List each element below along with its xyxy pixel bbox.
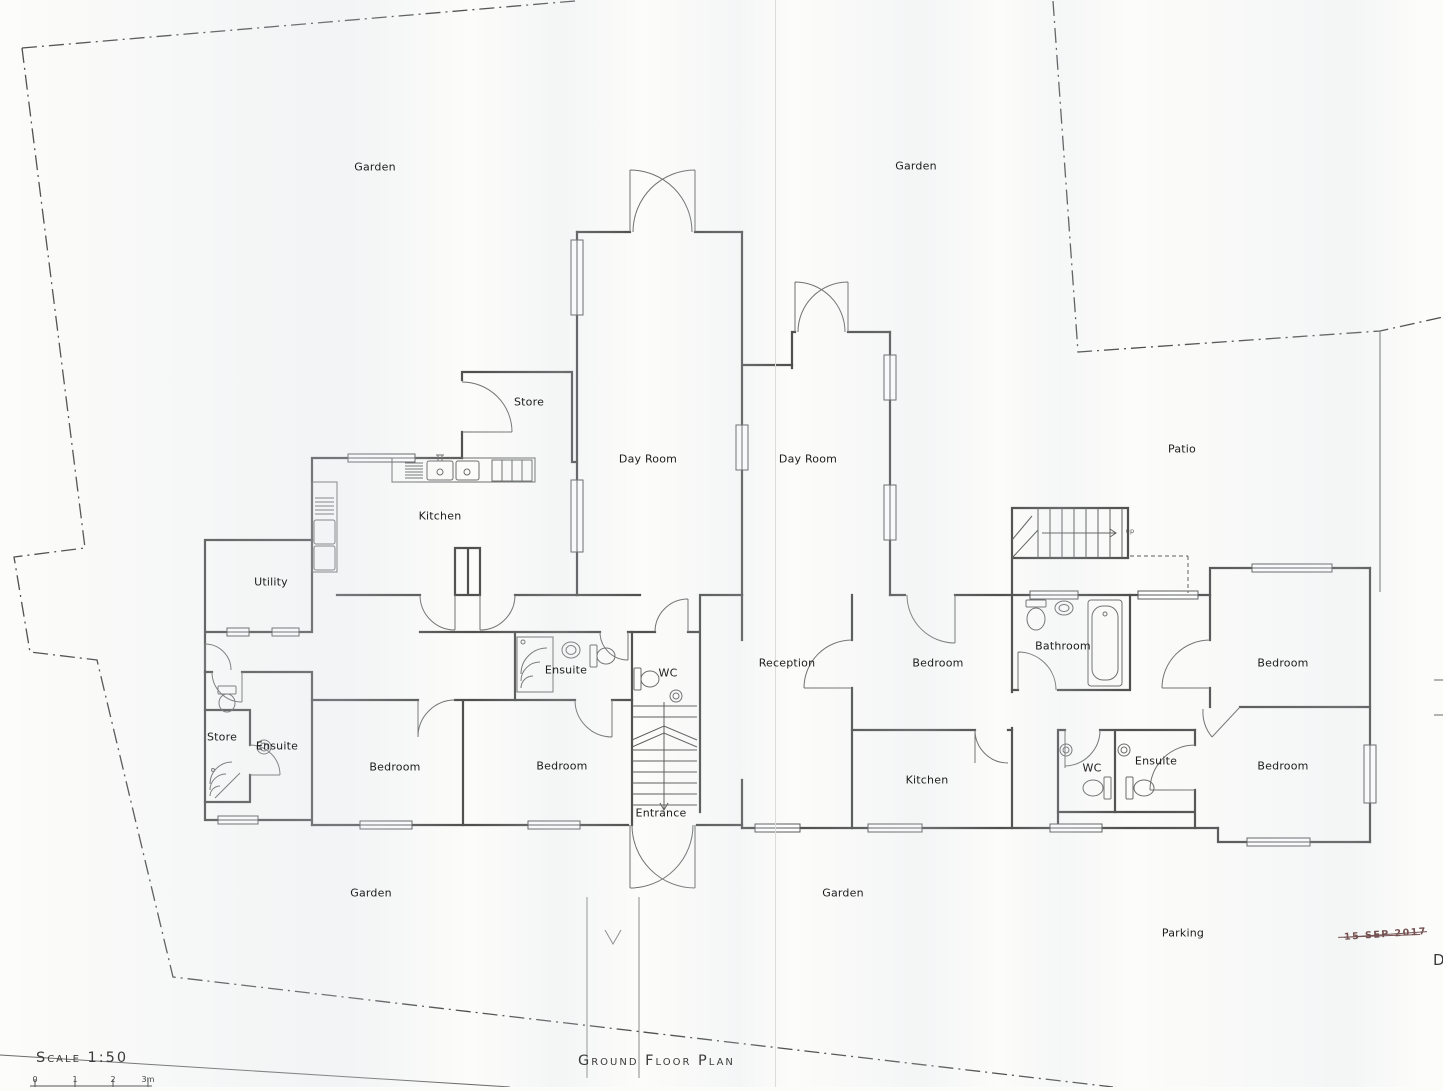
label-bedroom-right-top: Bedroom [912, 657, 963, 670]
label-stairs-up-note: up [1126, 527, 1135, 535]
label-day-room-left: Day Room [619, 453, 677, 466]
edge-cutoff-letter: D [1433, 951, 1443, 969]
scanned-floor-plan-page: { "titles": { "scale": "Scale 1:50", "pl… [0, 0, 1443, 1087]
windows [218, 240, 1376, 846]
scale-title: Scale 1:50 [36, 1050, 128, 1066]
label-bedroom-left-1: Bedroom [369, 761, 420, 774]
label-store-top: Store [514, 396, 544, 409]
label-entrance: Entrance [636, 807, 687, 820]
basin-icon [562, 642, 580, 658]
basin-icon [1060, 744, 1072, 756]
building-walls [205, 232, 1370, 842]
entrance-path [587, 897, 639, 1078]
label-garden-bottom-left: Garden [350, 887, 392, 900]
scale-tick-0: 0 [32, 1075, 37, 1084]
bathtub-icon [1088, 600, 1122, 686]
toilet-icon [218, 686, 236, 712]
scale-tick-1: 1 [72, 1075, 77, 1084]
plan-title: Ground Floor Plan [578, 1053, 735, 1069]
label-kitchen-right: Kitchen [906, 774, 949, 787]
toilet-icon [1026, 600, 1046, 630]
label-bedroom-left-2: Bedroom [536, 760, 587, 773]
basin-icon [1118, 744, 1130, 756]
label-garden-bottom-center: Garden [822, 887, 864, 900]
ensuite-right-fixtures [1118, 744, 1154, 799]
appliance-icon [314, 520, 335, 544]
scale-tick-3m: 3m [142, 1075, 155, 1084]
label-utility: Utility [254, 576, 288, 589]
entrance-double-doors [630, 825, 695, 888]
toilet-icon [1083, 777, 1111, 799]
label-store-block: Store [207, 731, 237, 744]
site-boundary [14, 1, 1443, 1087]
toilet-icon [590, 645, 615, 667]
doors [205, 170, 1240, 790]
sink-icon [456, 461, 479, 480]
basin-icon [670, 690, 682, 702]
label-ensuite-mid: Ensuite [545, 664, 587, 677]
label-wc-mid: WC [659, 667, 678, 680]
label-reception: Reception [759, 657, 816, 670]
appliance-icon [314, 546, 335, 570]
toilet-icon [634, 668, 659, 690]
label-ensuite-block: Ensuite [256, 740, 298, 753]
scale-bar [30, 1079, 152, 1087]
floor-plan-canvas [0, 0, 1443, 1087]
label-bedroom-far-right-bottom: Bedroom [1257, 760, 1308, 773]
hob-icon [405, 463, 423, 478]
label-garden-top-left: Garden [354, 161, 396, 174]
label-garden-top-right: Garden [895, 160, 937, 173]
label-parking: Parking [1162, 927, 1204, 940]
basin-icon [1055, 601, 1073, 615]
label-kitchen-main: Kitchen [419, 510, 462, 523]
label-bathroom: Bathroom [1035, 640, 1091, 653]
stairs-left [632, 702, 697, 810]
label-bedroom-far-right-top: Bedroom [1257, 657, 1308, 670]
scale-tick-2: 2 [110, 1075, 115, 1084]
stairs-right [1012, 508, 1188, 593]
floor-plan-drawing [0, 0, 1443, 1087]
drainer-icon [315, 498, 334, 514]
label-wc-right: WC [1083, 762, 1102, 775]
label-day-room-right: Day Room [779, 453, 837, 466]
label-patio: Patio [1168, 443, 1196, 456]
shower-fan-icon [210, 762, 240, 798]
label-ensuite-right: Ensuite [1135, 755, 1177, 768]
